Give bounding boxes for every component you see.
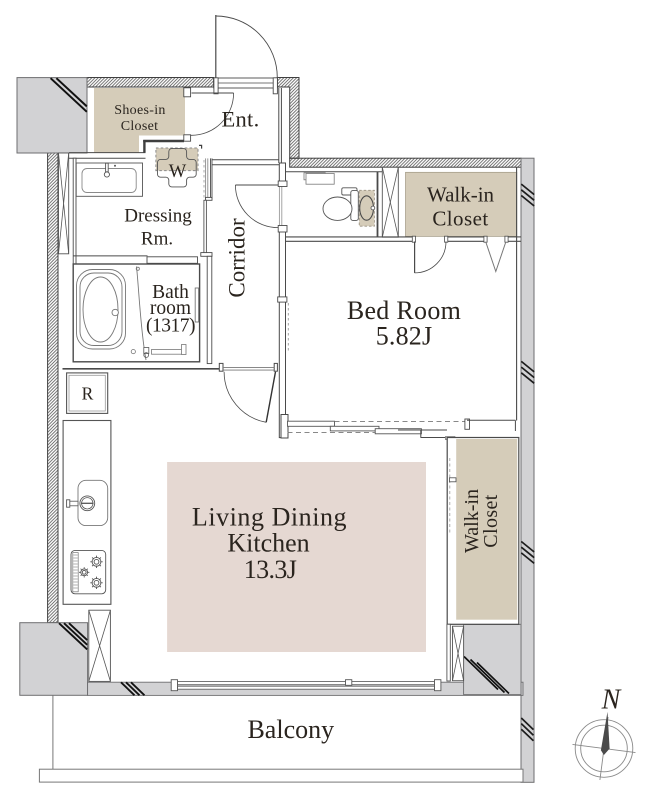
svg-text:Ent.: Ent. [221,107,259,132]
svg-text:Closet: Closet [432,207,488,231]
svg-text:Rm.: Rm. [141,229,173,250]
svg-text:R: R [82,384,94,404]
svg-text:Closet: Closet [480,494,502,548]
svg-text:Living Dining: Living Dining [192,503,347,532]
svg-text:Balcony: Balcony [247,715,334,744]
svg-text:Walk-in: Walk-in [427,183,495,207]
svg-text:(1317): (1317) [146,316,195,337]
svg-text:N: N [601,685,622,716]
svg-text:Shoes-in: Shoes-in [114,103,165,118]
svg-text:Corridor: Corridor [225,218,250,298]
svg-text:13.3J: 13.3J [244,555,297,584]
svg-text:5.82J: 5.82J [376,322,433,351]
svg-text:Closet: Closet [121,119,159,134]
svg-text:Kitchen: Kitchen [227,529,309,558]
svg-text:W: W [169,162,187,182]
svg-text:Dressing: Dressing [124,206,192,227]
